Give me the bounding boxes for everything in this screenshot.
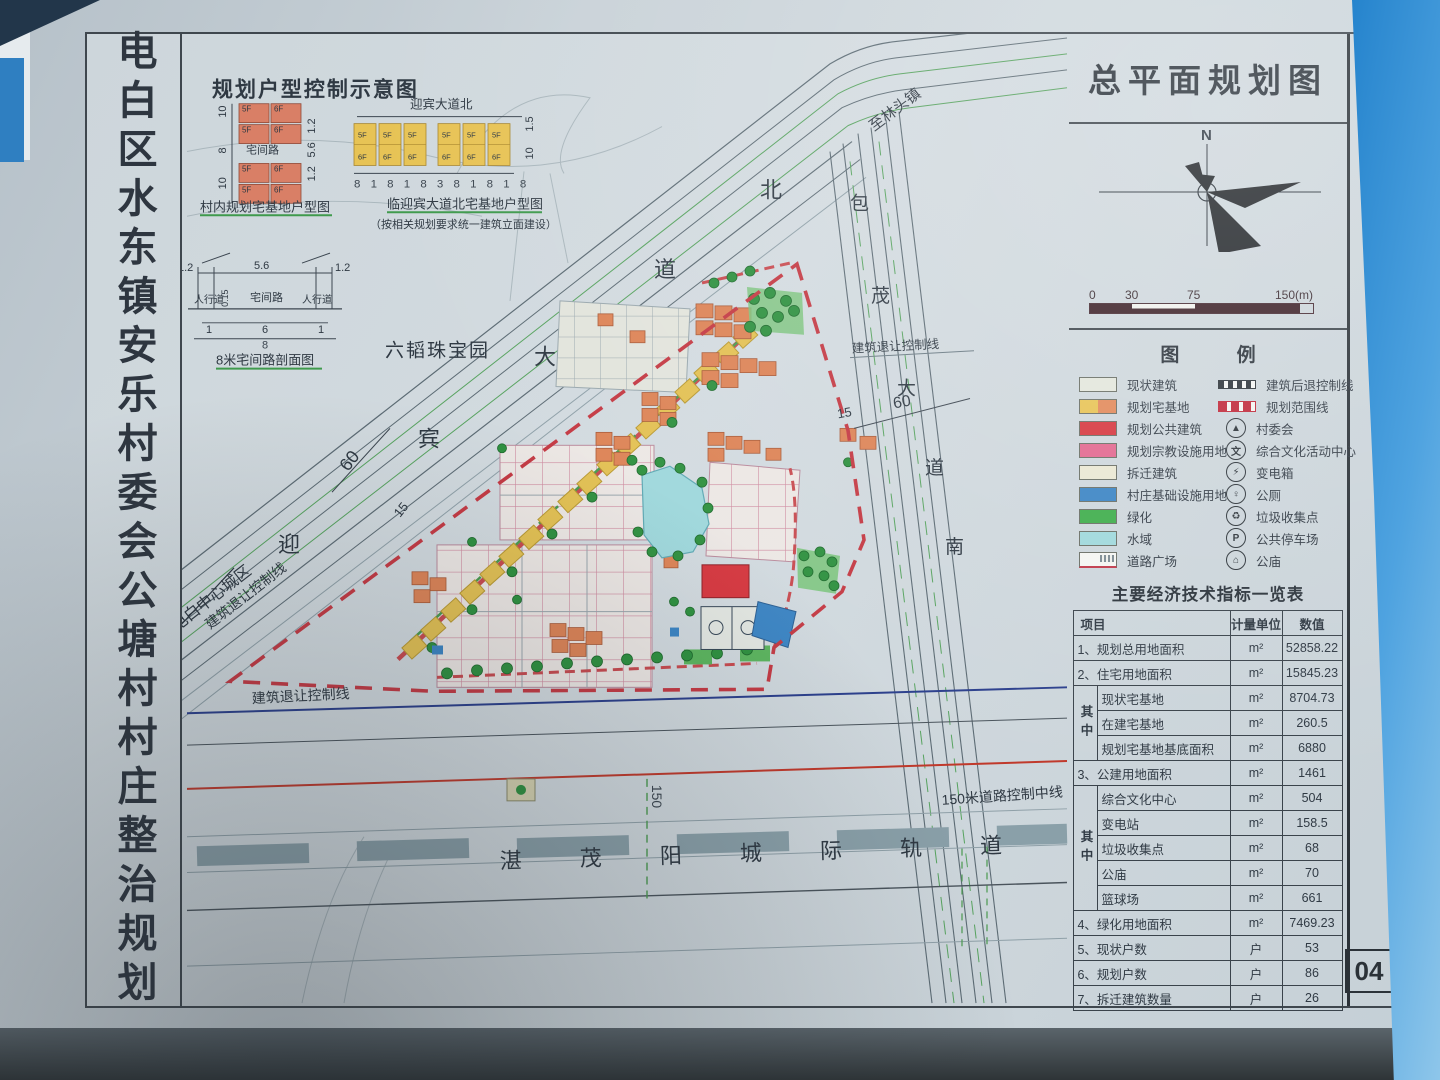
svg-text:10: 10	[217, 177, 229, 189]
table-row: 6、规划户数户86	[1074, 961, 1342, 986]
plan-side-title: 电白区水东镇安乐村委会公塘村村庄整治规划	[105, 30, 163, 1010]
indicators-table: 项目 计量单位 数值 1、规划总用地面积m²52858.22 2、住宅用地面积m…	[1073, 610, 1342, 1011]
table-row: 2、住宅用地面积m²15845.23	[1074, 661, 1342, 686]
section-caption: 8米宅间路剖面图	[216, 353, 314, 368]
swatch-water	[1079, 531, 1117, 546]
table-row: 变电站m²158.5	[1074, 811, 1342, 836]
svg-text:茂: 茂	[871, 285, 890, 307]
infrastructure-small-2	[670, 628, 679, 637]
inset-title: 规划户型控制示意图	[212, 78, 419, 102]
svg-text:6F: 6F	[408, 152, 417, 161]
legend-item: 道路广场	[1069, 549, 1208, 571]
legend-item: ⌂ 公庙	[1208, 549, 1347, 571]
cultural-center-icon: 文	[1226, 440, 1246, 460]
transformer-icon: ⚡	[1226, 462, 1246, 482]
table-row: 在建宅基地m²260.5	[1074, 711, 1342, 736]
swatch-religious-land	[1079, 443, 1117, 458]
jewelry-park-label: 六韬珠宝园	[385, 340, 490, 362]
table-row: 5、现状户数户53	[1074, 936, 1342, 961]
section-dim-total: 8	[262, 340, 268, 352]
legend-left-column: 现状建筑 规划宅基地 规划公共建筑 规划宗教设施用地 拆迁建筑	[1069, 373, 1208, 571]
scale-tick: 0	[1089, 288, 1096, 302]
north-arrow: N	[1069, 124, 1347, 252]
inset-right-note: （按相关规划要求统一建筑立面建设）	[370, 217, 557, 231]
legend-item: 建筑后退控制线	[1208, 373, 1347, 395]
legend-title: 图 例	[1069, 334, 1347, 373]
swatch-planned-homestead	[1079, 399, 1117, 414]
svg-text:5F: 5F	[242, 105, 251, 114]
rail-corridor: 湛 茂 阳 城 际 轨 道 150 150米道路控制中线	[187, 687, 1067, 966]
svg-text:人行道: 人行道	[302, 293, 332, 306]
table-row: 1、规划总用地面积m²52858.22	[1074, 636, 1342, 661]
svg-text:大: 大	[897, 378, 916, 400]
table-row: 7、拆迁建筑数量户26	[1074, 986, 1342, 1011]
garbage-icon: ♻	[1226, 506, 1246, 526]
table-row: 其中综合文化中心m²504	[1074, 786, 1342, 811]
svg-text:6F: 6F	[274, 126, 283, 135]
parking-icon: P	[1226, 528, 1246, 548]
legend-item: 村庄基础设施用地	[1069, 483, 1208, 505]
page-number: 04	[1345, 949, 1393, 993]
svg-text:6F: 6F	[274, 185, 283, 194]
svg-text:N: N	[1201, 127, 1212, 144]
planning-board: 电白区水东镇安乐村委会公塘村村庄整治规划	[85, 32, 1398, 1008]
svg-text:大: 大	[534, 345, 556, 370]
svg-text:5F: 5F	[383, 131, 392, 140]
svg-text:15: 15	[836, 404, 853, 421]
svg-text:5F: 5F	[408, 131, 417, 140]
svg-text:宾: 宾	[418, 426, 440, 451]
svg-text:建筑退让控制线: 建筑退让控制线	[251, 685, 350, 706]
svg-text:15: 15	[391, 499, 412, 520]
svg-text:5.6: 5.6	[254, 260, 269, 272]
site-plan-map: 湛 茂 阳 城 际 轨 道 150 150米道路控制中线	[182, 34, 1069, 1006]
legend-item: ♻ 垃圾收集点	[1208, 505, 1347, 527]
table-row: 规划宅基地基底面积m²6880	[1074, 736, 1342, 761]
table-row: 公庙m²70	[1074, 861, 1342, 886]
table-row: 篮球场m²661	[1074, 886, 1342, 911]
cultural-center-building	[702, 565, 749, 598]
site-plan-svg: 湛 茂 阳 城 际 轨 道 150 150米道路控制中线	[182, 34, 1069, 1006]
svg-text:1.2: 1.2	[335, 262, 350, 274]
economic-indicators: 主要经济技术指标一览表 项目 计量单位 数值 1、规划总用地面积m²52858.…	[1069, 573, 1347, 1011]
svg-text:5F: 5F	[242, 185, 251, 194]
inset-right-dims: 8 1 8 1 8 3 8 1 8 1 8	[354, 178, 530, 190]
legend-item: 规划公共建筑	[1069, 417, 1208, 439]
svg-text:5F: 5F	[467, 131, 476, 140]
table-row: 垃圾收集点m²68	[1074, 836, 1342, 861]
svg-text:6F: 6F	[467, 152, 476, 161]
compass-section: N 0 30 75 150(m)	[1069, 124, 1347, 330]
svg-text:5F: 5F	[242, 164, 251, 173]
legend-item: ⚡ 变电箱	[1208, 461, 1347, 483]
inset-left-road: 宅间路	[246, 143, 279, 157]
legend-item: ♀ 公厕	[1208, 483, 1347, 505]
legend-item: P 公共停车场	[1208, 527, 1347, 549]
swatch-existing-building	[1079, 377, 1117, 392]
legend-item: 水域	[1069, 527, 1208, 549]
scale-tick: 150(m)	[1275, 288, 1313, 302]
svg-text:1.2: 1.2	[182, 262, 193, 274]
svg-text:6F: 6F	[358, 152, 367, 161]
svg-text:10: 10	[217, 105, 229, 117]
photo-bottom-edge	[0, 1028, 1440, 1080]
svg-text:6F: 6F	[274, 105, 283, 114]
svg-text:6F: 6F	[383, 152, 392, 161]
dim-150: 150	[649, 785, 665, 808]
svg-text:1: 1	[318, 324, 324, 336]
inset-right-caption: 临迎宾大道北宅基地户型图	[387, 196, 543, 211]
legend-right-column: 建筑后退控制线 规划范围线 ▲ 村委会 文 综合文化活动中心 ⚡ 变电	[1208, 373, 1347, 571]
svg-text:6F: 6F	[274, 164, 283, 173]
svg-text:5F: 5F	[358, 131, 367, 140]
inset-left-diagram: 5F6F 5F6F 5F6F 5F6F 宅间路 10 8 10 1.2 5	[200, 104, 332, 216]
village-committee-icon: ▲	[1226, 418, 1246, 438]
section-dim-small: 0.15	[220, 289, 230, 306]
svg-text:5F: 5F	[242, 126, 251, 135]
legend-item: ▲ 村委会	[1208, 417, 1347, 439]
table-title: 主要经济技术指标一览表	[1069, 579, 1347, 610]
svg-text:6F: 6F	[442, 152, 451, 161]
legend-item: 规划宅基地	[1069, 395, 1208, 417]
svg-text:5.6: 5.6	[306, 142, 318, 157]
photo-left-blue-sticker	[0, 58, 24, 162]
svg-text:1.2: 1.2	[306, 118, 318, 133]
svg-text:5F: 5F	[442, 131, 451, 140]
svg-text:建筑退让控制线: 建筑退让控制线	[851, 336, 939, 356]
svg-text:10: 10	[524, 147, 536, 159]
baomao-avenue-road	[830, 112, 1006, 1003]
road-control-label: 150米道路控制中线	[941, 783, 1063, 807]
svg-text:道: 道	[925, 457, 944, 479]
infrastructure-small-1	[432, 645, 443, 654]
svg-text:6F: 6F	[492, 152, 501, 161]
toilet-icon: ♀	[1226, 484, 1246, 504]
to-lintou-label: 至林头镇	[866, 85, 924, 134]
legend-item: 现状建筑	[1069, 373, 1208, 395]
swatch-greening	[1079, 509, 1117, 524]
legend-item: 规划宗教设施用地	[1069, 439, 1208, 461]
legend-item: 文 综合文化活动中心	[1208, 439, 1347, 461]
svg-text:道: 道	[654, 257, 676, 282]
swatch-demolished-building	[1079, 465, 1117, 480]
table-row: 3、公建用地面积m²1461	[1074, 761, 1342, 786]
scale-bar: 0 30 75 150(m)	[1089, 288, 1314, 314]
swatch-road-square	[1079, 552, 1117, 568]
setback-line-swatch	[1218, 380, 1256, 389]
legend: 图 例 现状建筑 规划宅基地 规划公共建筑	[1069, 330, 1347, 573]
svg-text:5F: 5F	[492, 131, 501, 140]
legend-item: 拆迁建筑	[1069, 461, 1208, 483]
table-row: 其中现状宅基地m²8704.73	[1074, 686, 1342, 711]
swatch-infrastructure-land	[1079, 487, 1117, 502]
svg-text:8: 8	[217, 147, 229, 153]
svg-text:包: 包	[850, 192, 869, 214]
svg-text:南: 南	[945, 536, 964, 558]
svg-text:1.2: 1.2	[306, 166, 318, 181]
legend-item: 绿化	[1069, 505, 1208, 527]
svg-text:1: 1	[206, 324, 212, 336]
photo-of-planning-board: 电白区水东镇安乐村委会公塘村村庄整治规划	[0, 0, 1440, 1080]
scale-tick: 30	[1125, 288, 1138, 302]
road-section-diagram: 1.2 5.6 1.2 人行道 宅间路 人行道 0.15	[182, 253, 350, 369]
scale-tick: 75	[1187, 288, 1200, 302]
svg-text:1.5: 1.5	[524, 116, 536, 131]
side-title-column: 电白区水东镇安乐村委会公塘村村庄整治规划	[87, 34, 182, 1006]
plan-title: 总平面规划图	[1069, 34, 1347, 124]
inset-diagrams: 规划户型控制示意图 5F6F 5F6F 5F6F	[182, 78, 557, 369]
info-panel: 总平面规划图 N 0 30 75 15	[1069, 34, 1350, 1006]
temple-icon: ⌂	[1226, 550, 1246, 570]
inset-left-caption: 村内规划宅基地户型图	[200, 199, 330, 214]
table-header-row: 项目 计量单位 数值	[1074, 611, 1342, 636]
svg-text:迎: 迎	[278, 532, 300, 557]
inset-right-road: 迎宾大道北	[410, 97, 473, 112]
inset-right-diagram: 迎宾大道北	[354, 97, 557, 231]
svg-text:6: 6	[262, 324, 268, 336]
svg-text:北: 北	[760, 177, 782, 202]
legend-item: 规划范围线	[1208, 395, 1347, 417]
swatch-public-building	[1079, 421, 1117, 436]
table-row: 4、绿化用地面积m²7469.23	[1074, 911, 1342, 936]
svg-text:宅间路: 宅间路	[250, 290, 283, 304]
boundary-line-swatch	[1218, 401, 1256, 412]
